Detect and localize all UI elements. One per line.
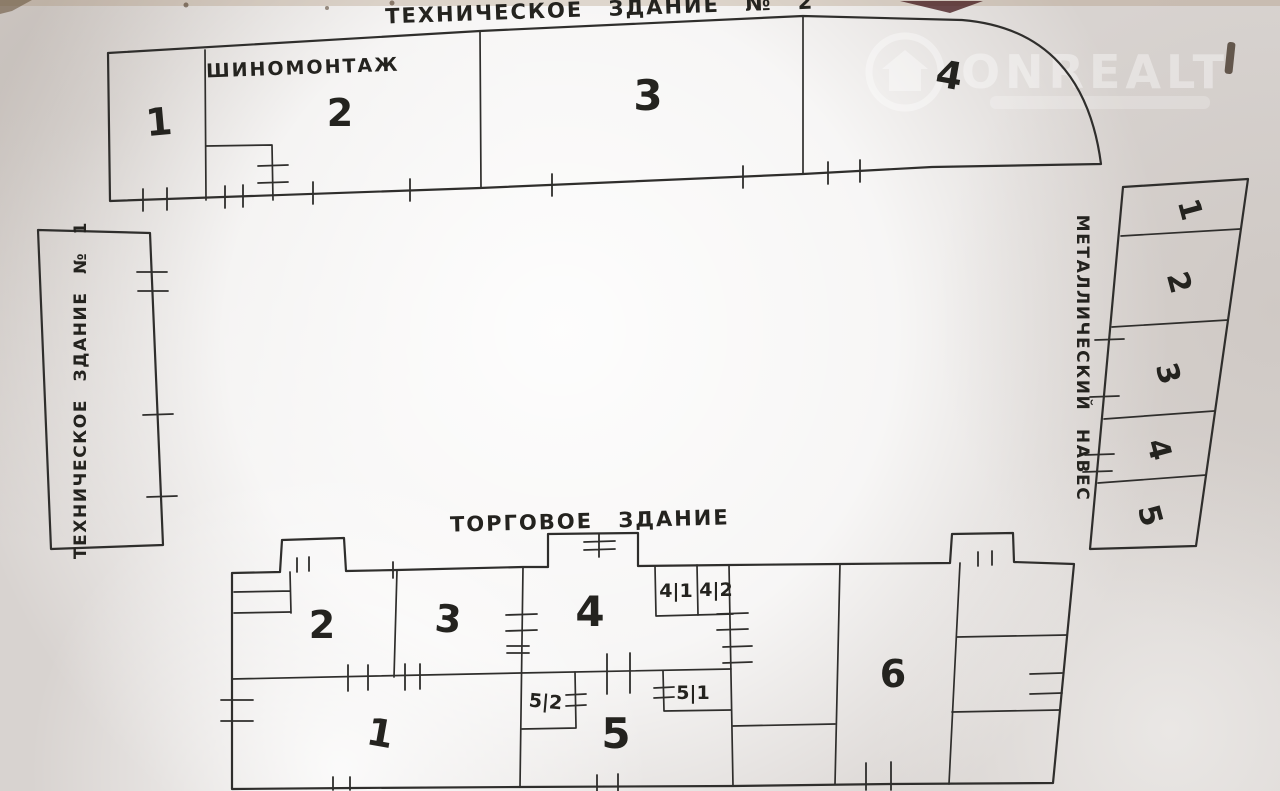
trade-room-5-2-number: 5|2 [528, 690, 563, 715]
canopy-title: МЕТАЛЛИЧЕСКИЙ НАВЕС [1072, 215, 1094, 502]
tech2-wall-2-3 [480, 31, 481, 188]
trade-room-4-number: 4 [575, 587, 604, 636]
trade-room-4-1-number: 4|1 [659, 580, 692, 602]
trade-room-5-number: 5 [601, 709, 630, 758]
trade-room-4-2-number: 4|2 [699, 579, 732, 601]
tech2-room-2-number: 2 [327, 91, 353, 135]
tech2-room-3-number: 3 [633, 71, 662, 120]
watermark-brand-text: ONREALT [961, 45, 1229, 99]
floor-plan-canvas: ONREALT ТЕХНИЧЕСКОЕ ЗДАНИЕ № 2 ШИНОМОНТА… [0, 0, 1280, 791]
trade-wall-4-1-4-2 [697, 565, 698, 615]
trade-room-6-number: 6 [880, 652, 906, 696]
floor-plan-photo: ONREALT ТЕХНИЧЕСКОЕ ЗДАНИЕ № 2 ШИНОМОНТА… [0, 0, 1280, 791]
trade-room-2-number: 2 [309, 603, 335, 647]
trade-room-5-1-number: 5|1 [676, 682, 709, 704]
tech1-title: ТЕХНИЧЕСКОЕ ЗДАНИЕ № 1 [71, 221, 91, 559]
trade-room-3-number: 3 [433, 596, 463, 642]
tech2-room-1-number: 1 [144, 99, 174, 145]
watermark-subtitle-bar [990, 96, 1210, 109]
edge-speck [184, 3, 189, 8]
edge-speck [325, 6, 329, 10]
